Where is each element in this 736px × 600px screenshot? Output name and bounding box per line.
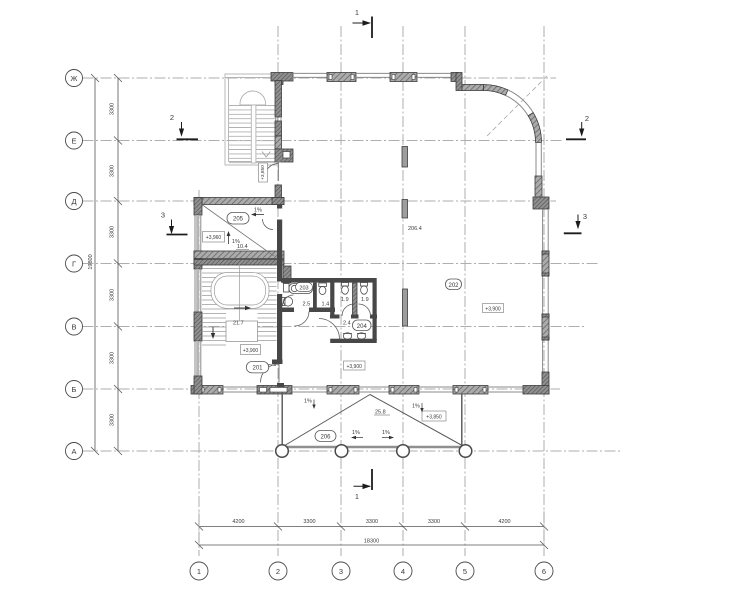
svg-text:+3,900: +3,900 (346, 364, 362, 370)
svg-text:19800: 19800 (88, 254, 94, 269)
svg-text:3: 3 (339, 567, 343, 576)
svg-text:3300: 3300 (110, 352, 116, 364)
svg-text:4: 4 (401, 567, 405, 576)
svg-text:+3,900: +3,900 (485, 306, 501, 312)
svg-text:Д: Д (71, 197, 76, 206)
svg-text:1%: 1% (254, 208, 262, 214)
svg-text:3300: 3300 (110, 165, 116, 177)
svg-text:1: 1 (355, 494, 359, 501)
svg-text:1%: 1% (382, 430, 390, 436)
svg-text:18300: 18300 (364, 539, 379, 545)
svg-text:3300: 3300 (366, 519, 378, 525)
svg-text:202: 202 (448, 283, 459, 289)
svg-text:206: 206 (320, 435, 331, 441)
svg-text:6: 6 (542, 567, 546, 576)
svg-text:3300: 3300 (110, 226, 116, 238)
svg-text:2.4: 2.4 (343, 321, 351, 327)
svg-text:1.9: 1.9 (341, 297, 349, 303)
svg-text:А: А (71, 447, 76, 456)
svg-text:3300: 3300 (110, 414, 116, 426)
svg-text:1.4: 1.4 (322, 302, 330, 308)
svg-text:3300: 3300 (110, 289, 116, 301)
svg-text:+3,850: +3,850 (260, 165, 266, 180)
svg-text:+3,960: +3,960 (206, 235, 222, 241)
svg-text:1: 1 (197, 567, 201, 576)
svg-text:5: 5 (463, 567, 467, 576)
svg-text:2: 2 (585, 114, 589, 123)
svg-text:10.4: 10.4 (237, 244, 248, 250)
svg-text:3: 3 (161, 211, 165, 220)
svg-text:В: В (71, 322, 76, 331)
svg-text:1.9: 1.9 (361, 297, 369, 303)
svg-text:4200: 4200 (498, 519, 510, 525)
svg-text:25.8: 25.8 (375, 410, 386, 416)
svg-text:201: 201 (252, 366, 263, 372)
svg-text:2: 2 (276, 567, 280, 576)
svg-text:+3,900: +3,900 (243, 348, 259, 354)
svg-text:Г: Г (72, 259, 76, 268)
svg-text:1%: 1% (352, 430, 360, 436)
svg-text:1: 1 (355, 10, 359, 17)
svg-text:2: 2 (170, 113, 174, 122)
svg-text:21.7: 21.7 (233, 321, 244, 327)
svg-text:Б: Б (72, 385, 77, 394)
svg-text:1%: 1% (304, 399, 312, 405)
svg-text:205: 205 (233, 217, 244, 223)
svg-text:3300: 3300 (303, 519, 315, 525)
svg-text:203: 203 (299, 285, 308, 291)
svg-text:2.5: 2.5 (303, 302, 311, 308)
svg-text:Е: Е (71, 136, 76, 145)
svg-text:204: 204 (357, 324, 368, 330)
svg-text:Ж: Ж (71, 74, 78, 83)
svg-text:206.4: 206.4 (408, 226, 422, 232)
svg-text:3: 3 (583, 212, 587, 221)
svg-text:1%: 1% (412, 404, 420, 410)
svg-text:+3,850: +3,850 (426, 415, 442, 421)
svg-text:3300: 3300 (428, 519, 440, 525)
svg-text:3300: 3300 (110, 103, 116, 115)
svg-text:4200: 4200 (232, 519, 244, 525)
